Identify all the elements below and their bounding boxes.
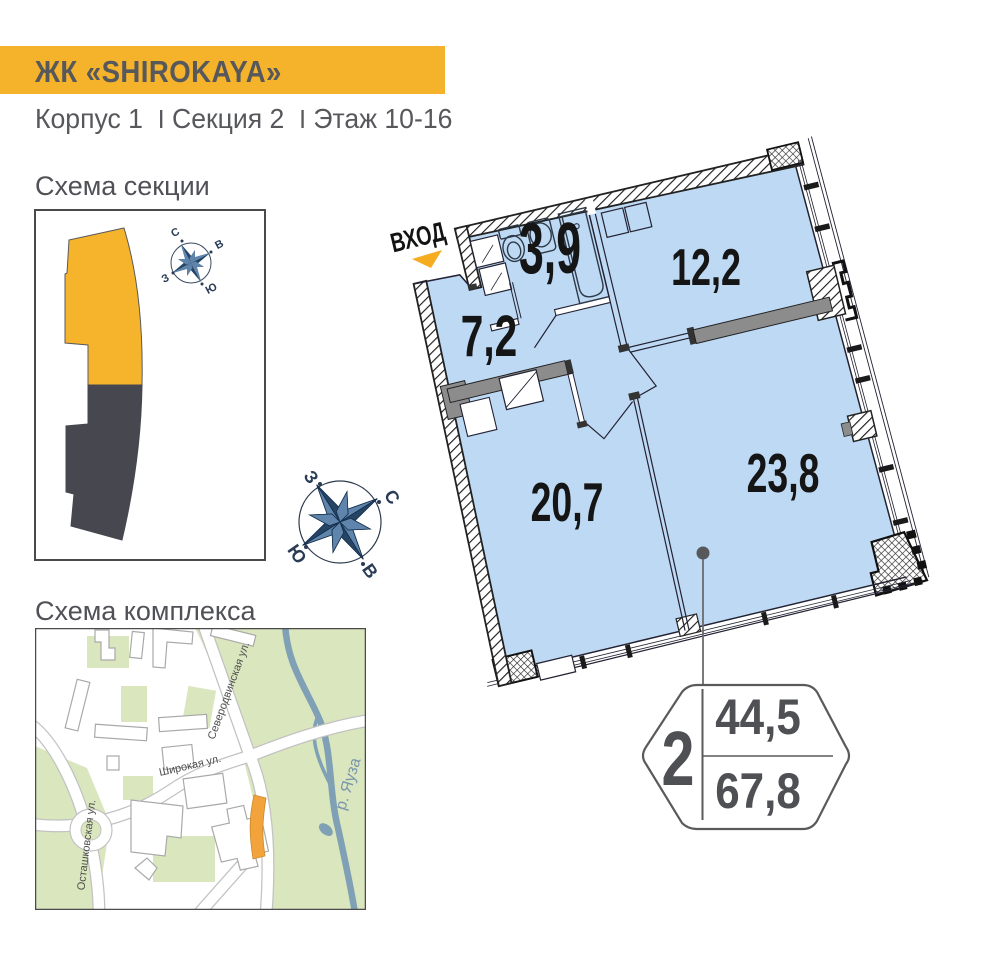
svg-text:44,5: 44,5 <box>715 688 801 744</box>
svg-text:7,2: 7,2 <box>461 304 517 369</box>
svg-text:20,7: 20,7 <box>531 471 604 533</box>
svg-text:2: 2 <box>662 716 695 802</box>
svg-text:67,8: 67,8 <box>715 762 801 818</box>
svg-text:3,9: 3,9 <box>519 208 581 289</box>
svg-text:12,2: 12,2 <box>671 240 741 297</box>
svg-text:Ю: Ю <box>283 541 310 568</box>
svg-text:23,8: 23,8 <box>747 442 820 504</box>
